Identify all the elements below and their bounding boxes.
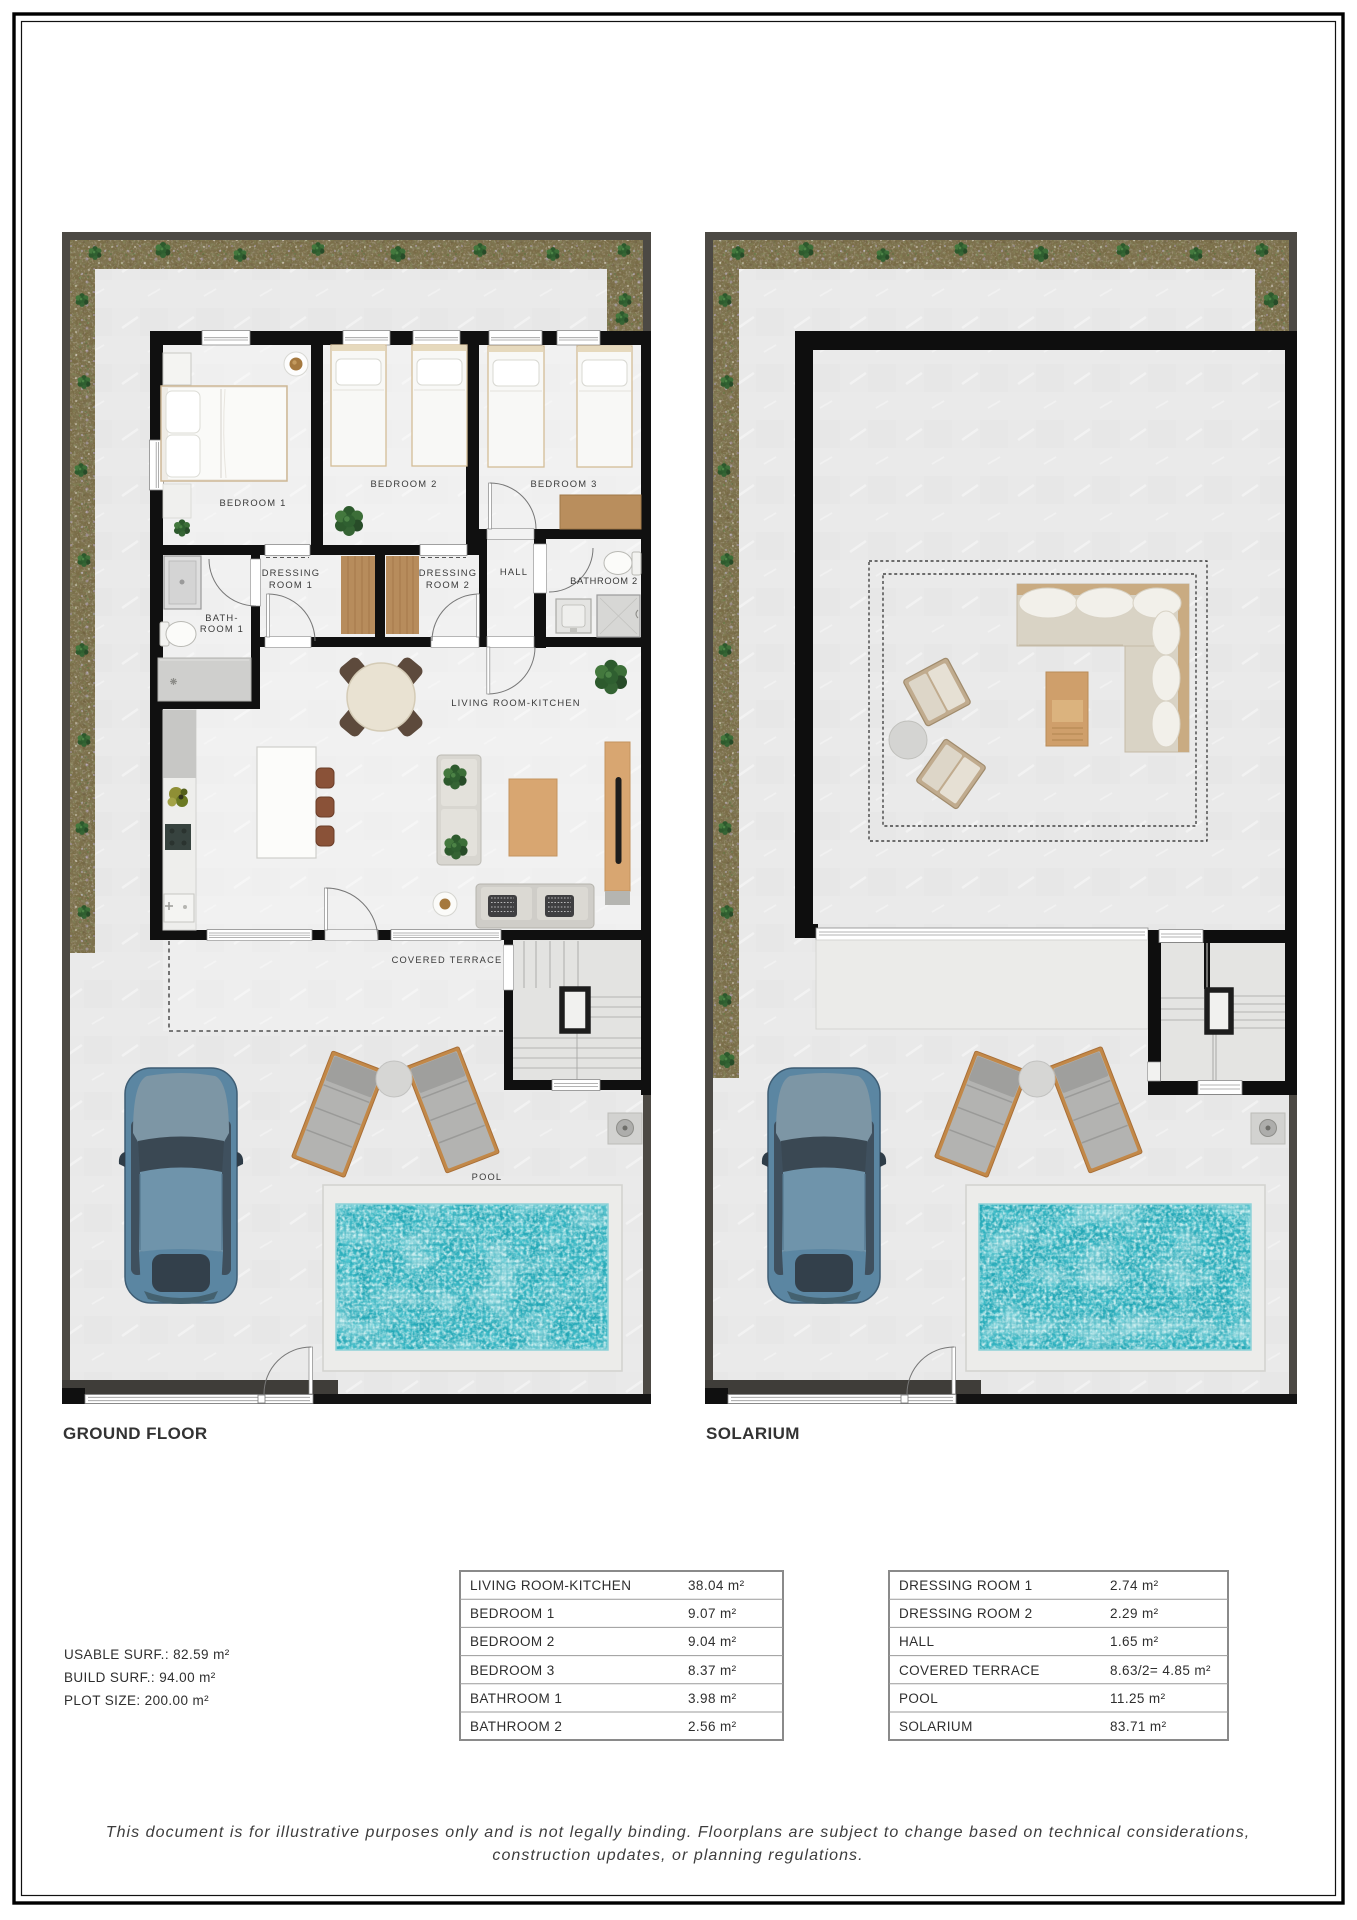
svg-text:DRESSING: DRESSING bbox=[419, 567, 478, 578]
svg-text:SOLARIUM: SOLARIUM bbox=[706, 1424, 800, 1443]
svg-text:BATHROOM 2: BATHROOM 2 bbox=[570, 576, 638, 586]
svg-text:9.07 m²: 9.07 m² bbox=[688, 1606, 737, 1621]
svg-text:1.65 m²: 1.65 m² bbox=[1110, 1634, 1159, 1649]
svg-text:GROUND FLOOR: GROUND FLOOR bbox=[63, 1424, 208, 1443]
svg-text:This document is for illustrat: This document is for illustrative purpos… bbox=[106, 1824, 1251, 1841]
svg-text:COVERED TERRACE: COVERED TERRACE bbox=[392, 955, 503, 965]
svg-text:BEDROOM 3: BEDROOM 3 bbox=[530, 478, 597, 489]
svg-text:BEDROOM 2: BEDROOM 2 bbox=[370, 478, 437, 489]
svg-text:8.37 m²: 8.37 m² bbox=[688, 1663, 737, 1678]
svg-text:construction updates, or plann: construction updates, or planning regula… bbox=[492, 1847, 863, 1864]
svg-text:8.63/2= 4.85 m²: 8.63/2= 4.85 m² bbox=[1110, 1663, 1211, 1678]
svg-text:POOL: POOL bbox=[472, 1172, 503, 1182]
svg-text:HALL: HALL bbox=[500, 566, 528, 577]
svg-text:ROOM 2: ROOM 2 bbox=[426, 579, 470, 590]
svg-text:PLOT SIZE: 200.00 m²: PLOT SIZE: 200.00 m² bbox=[64, 1693, 209, 1708]
svg-text:BATHROOM 2: BATHROOM 2 bbox=[470, 1719, 562, 1734]
svg-text:83.71 m²: 83.71 m² bbox=[1110, 1719, 1167, 1734]
svg-text:HALL: HALL bbox=[899, 1634, 934, 1649]
svg-text:BEDROOM 2: BEDROOM 2 bbox=[470, 1634, 555, 1649]
svg-text:BEDROOM 3: BEDROOM 3 bbox=[470, 1663, 555, 1678]
svg-text:DRESSING ROOM 1: DRESSING ROOM 1 bbox=[899, 1578, 1033, 1593]
svg-text:LIVING ROOM-KITCHEN: LIVING ROOM-KITCHEN bbox=[451, 697, 581, 708]
svg-text:BATHROOM 1: BATHROOM 1 bbox=[470, 1691, 562, 1706]
svg-text:2.29 m²: 2.29 m² bbox=[1110, 1606, 1159, 1621]
svg-text:COVERED TERRACE: COVERED TERRACE bbox=[899, 1663, 1040, 1678]
svg-text:USABLE SURF.: 82.59 m²: USABLE SURF.: 82.59 m² bbox=[64, 1647, 230, 1662]
svg-text:BEDROOM 1: BEDROOM 1 bbox=[219, 497, 286, 508]
svg-text:BUILD SURF.: 94.00 m²: BUILD SURF.: 94.00 m² bbox=[64, 1670, 216, 1685]
svg-text:LIVING ROOM-KITCHEN: LIVING ROOM-KITCHEN bbox=[470, 1578, 631, 1593]
svg-text:BATH-: BATH- bbox=[205, 612, 238, 623]
svg-text:2.56 m²: 2.56 m² bbox=[688, 1719, 737, 1734]
svg-text:POOL: POOL bbox=[899, 1691, 938, 1706]
svg-text:2.74 m²: 2.74 m² bbox=[1110, 1578, 1159, 1593]
svg-text:BEDROOM 1: BEDROOM 1 bbox=[470, 1606, 555, 1621]
svg-text:ROOM 1: ROOM 1 bbox=[269, 579, 313, 590]
svg-text:9.04 m²: 9.04 m² bbox=[688, 1634, 737, 1649]
svg-text:DRESSING: DRESSING bbox=[262, 567, 321, 578]
svg-text:38.04 m²: 38.04 m² bbox=[688, 1578, 745, 1593]
svg-text:SOLARIUM: SOLARIUM bbox=[899, 1719, 973, 1734]
svg-text:11.25 m²: 11.25 m² bbox=[1110, 1691, 1166, 1706]
svg-text:ROOM 1: ROOM 1 bbox=[200, 623, 244, 634]
svg-text:DRESSING ROOM 2: DRESSING ROOM 2 bbox=[899, 1606, 1033, 1621]
svg-text:3.98 m²: 3.98 m² bbox=[688, 1691, 737, 1706]
